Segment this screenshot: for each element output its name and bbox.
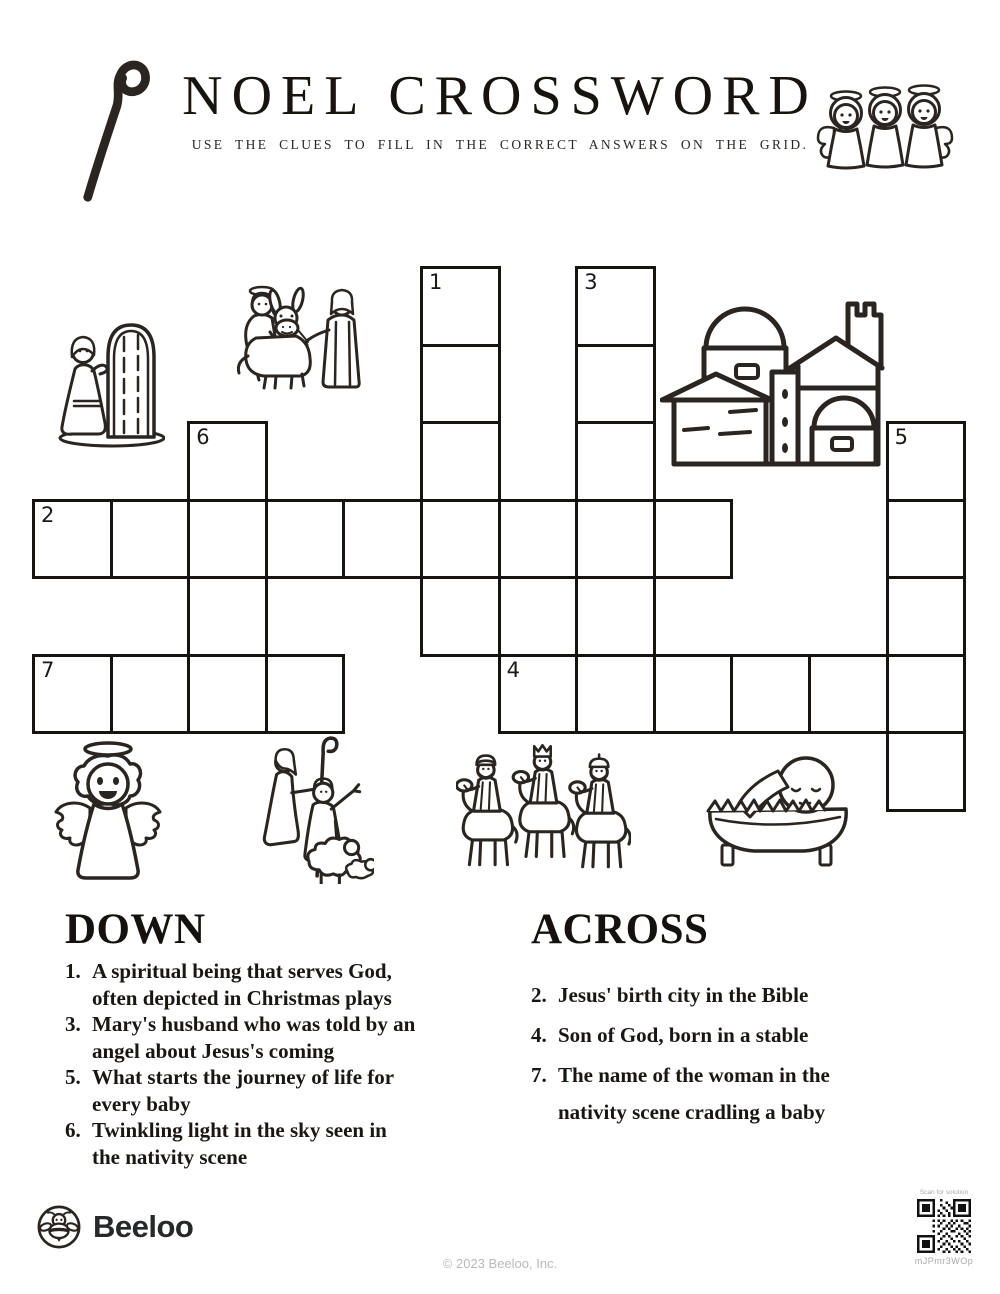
- grid-cell[interactable]: [575, 654, 656, 735]
- three-wise-men-image: [456, 742, 631, 870]
- grid-cell[interactable]: [265, 654, 346, 735]
- brand-wordmark: Beeloo: [93, 1209, 193, 1245]
- bee-icon: [36, 1204, 82, 1250]
- grid-cell[interactable]: [808, 654, 889, 735]
- crossword-grid: 1365274: [32, 266, 967, 812]
- grid-cell[interactable]: [110, 654, 191, 735]
- worksheet-page: NOEL CROSSWORD USE THE CLUES TO FILL IN …: [0, 0, 1000, 1294]
- grid-cell-2[interactable]: 2: [32, 499, 113, 580]
- qr-block: Scan for solution mJPmr3WOp: [908, 1189, 980, 1266]
- clue-text: The name of the woman in the: [558, 1061, 961, 1089]
- cell-number: 4: [507, 658, 520, 682]
- across-clue-4: 4. Son of God, born in a stable: [531, 1021, 961, 1049]
- cell-number: 5: [895, 425, 908, 449]
- grid-cell[interactable]: [886, 654, 967, 735]
- clue-text: A spiritual being that serves God,: [92, 958, 495, 985]
- grid-cell-6[interactable]: 6: [187, 421, 268, 502]
- clue-text: What starts the journey of life for: [92, 1064, 495, 1091]
- grid-cell-3[interactable]: 3: [575, 266, 656, 347]
- grid-cell[interactable]: [187, 499, 268, 580]
- shepherds-crook-image: [72, 50, 150, 205]
- grid-cell[interactable]: [110, 499, 191, 580]
- clue-number: 6.: [65, 1117, 81, 1144]
- grid-cell[interactable]: [187, 654, 268, 735]
- clue-text: often depicted in Christmas plays: [92, 985, 495, 1012]
- qr-code-text: mJPmr3WOp: [908, 1256, 980, 1266]
- across-clue-7: 7. The name of the woman in the nativity…: [531, 1061, 961, 1126]
- clue-text: every baby: [92, 1091, 495, 1118]
- qr-caption: Scan for solution: [908, 1189, 980, 1196]
- clue-text: Twinkling light in the sky seen in: [92, 1117, 495, 1144]
- grid-cell[interactable]: [187, 576, 268, 657]
- grid-cell[interactable]: [575, 499, 656, 580]
- three-angels-image: [810, 80, 960, 172]
- clue-number: 7.: [531, 1061, 547, 1089]
- grid-cell[interactable]: [653, 499, 734, 580]
- copyright-text: © 2023 Beeloo, Inc.: [0, 1256, 1000, 1271]
- clue-text: Mary's husband who was told by an: [92, 1011, 495, 1038]
- clue-text: Jesus' birth city in the Bible: [558, 981, 961, 1009]
- down-clue-1: 1. A spiritual being that serves God, of…: [65, 958, 495, 1011]
- grid-cell[interactable]: [265, 499, 346, 580]
- clue-number: 3.: [65, 1011, 81, 1038]
- down-heading: DOWN: [65, 905, 206, 954]
- across-clue-2: 2. Jesus' birth city in the Bible: [531, 981, 961, 1009]
- clue-number: 1.: [65, 958, 81, 985]
- grid-cell[interactable]: [886, 499, 967, 580]
- grid-cell[interactable]: [342, 499, 423, 580]
- clue-text: nativity scene cradling a baby: [558, 1098, 961, 1126]
- across-clues: 2. Jesus' birth city in the Bible 4. Son…: [531, 981, 961, 1138]
- angel-image: [48, 738, 168, 888]
- down-clue-3: 3. Mary's husband who was told by an ang…: [65, 1011, 495, 1064]
- down-clue-6: 6. Twinkling light in the sky seen in th…: [65, 1117, 495, 1170]
- grid-cell-7[interactable]: 7: [32, 654, 113, 735]
- grid-cell[interactable]: [575, 344, 656, 425]
- grid-cell[interactable]: [420, 344, 501, 425]
- across-heading: ACROSS: [531, 905, 708, 954]
- cell-number: 7: [41, 658, 54, 682]
- clue-text: angel about Jesus's coming: [92, 1038, 495, 1065]
- beeloo-logo: Beeloo: [36, 1204, 193, 1250]
- clue-number: 5.: [65, 1064, 81, 1091]
- cell-number: 3: [584, 270, 597, 294]
- shepherds-sheep-image: [242, 732, 374, 884]
- grid-cell-4[interactable]: 4: [498, 654, 579, 735]
- grid-cell-5[interactable]: 5: [886, 421, 967, 502]
- cell-number: 1: [429, 270, 442, 294]
- grid-cell[interactable]: [420, 499, 501, 580]
- grid-cell[interactable]: [730, 654, 811, 735]
- clue-number: 2.: [531, 981, 547, 1009]
- grid-cell[interactable]: [886, 731, 967, 812]
- cell-number: 6: [196, 425, 209, 449]
- grid-cell[interactable]: [575, 576, 656, 657]
- grid-cell-1[interactable]: 1: [420, 266, 501, 347]
- qr-code-image: [917, 1199, 971, 1253]
- clue-text: the nativity scene: [92, 1144, 495, 1171]
- clue-number: 4.: [531, 1021, 547, 1049]
- grid-cell[interactable]: [886, 576, 967, 657]
- down-clues: 1. A spiritual being that serves God, of…: [65, 958, 495, 1170]
- cell-number: 2: [41, 503, 54, 527]
- baby-manger-image: [694, 746, 864, 870]
- down-clue-5: 5. What starts the journey of life for e…: [65, 1064, 495, 1117]
- grid-cell[interactable]: [420, 576, 501, 657]
- grid-cell[interactable]: [575, 421, 656, 502]
- grid-cell[interactable]: [653, 654, 734, 735]
- grid-cell[interactable]: [420, 421, 501, 502]
- grid-cell[interactable]: [498, 499, 579, 580]
- clue-text: Son of God, born in a stable: [558, 1021, 961, 1049]
